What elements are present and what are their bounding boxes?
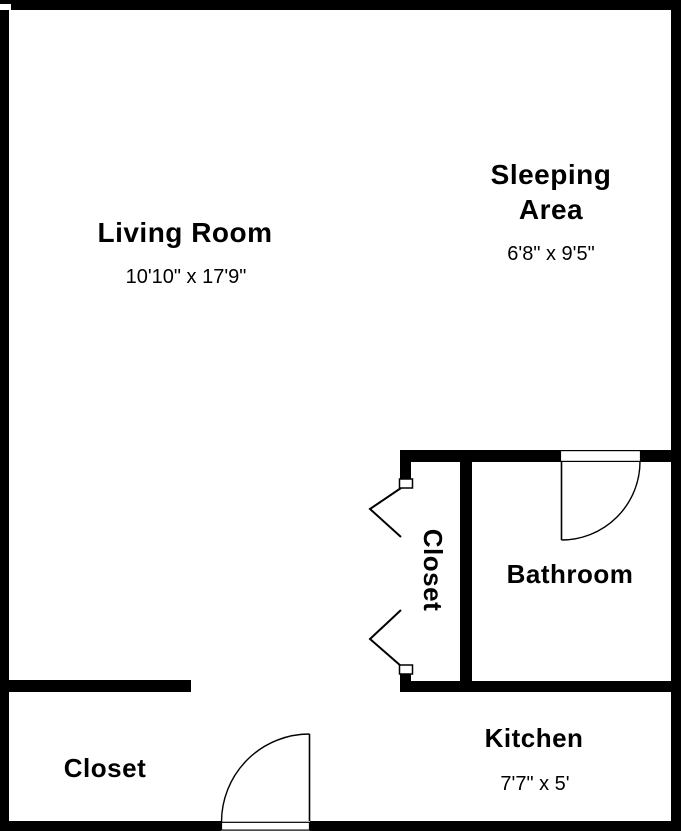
floorplan: Living Room 10'10" x 17'9" Sleeping Area… — [0, 0, 681, 831]
bathroom-door-threshold — [561, 451, 641, 462]
entry-door-swing-arc — [222, 734, 310, 822]
kitchen-label: Kitchen — [434, 723, 634, 754]
entry-door-threshold — [222, 822, 310, 830]
living-room-dimensions: 10'10" x 17'9" — [46, 266, 326, 289]
sleeping-area-dimensions: 6'8" x 9'5" — [451, 243, 651, 266]
hall-closet-bifold-door-top — [370, 488, 401, 537]
hall-closet-jamb-bottom — [400, 665, 413, 674]
bathroom-door-swing-arc — [562, 462, 641, 541]
kitchen-dimensions: 7'7" x 5' — [435, 773, 635, 796]
door-symbols-layer — [0, 0, 681, 831]
hall-closet-label: Closet — [413, 490, 453, 650]
hall-closet-bifold-door-bottom — [370, 610, 401, 666]
living-room-label: Living Room — [45, 217, 325, 249]
entry-closet-label: Closet — [5, 753, 205, 784]
sleeping-area-label: Sleeping Area — [481, 157, 621, 227]
hall-closet-jamb-top — [400, 479, 413, 488]
bathroom-label: Bathroom — [470, 559, 670, 590]
